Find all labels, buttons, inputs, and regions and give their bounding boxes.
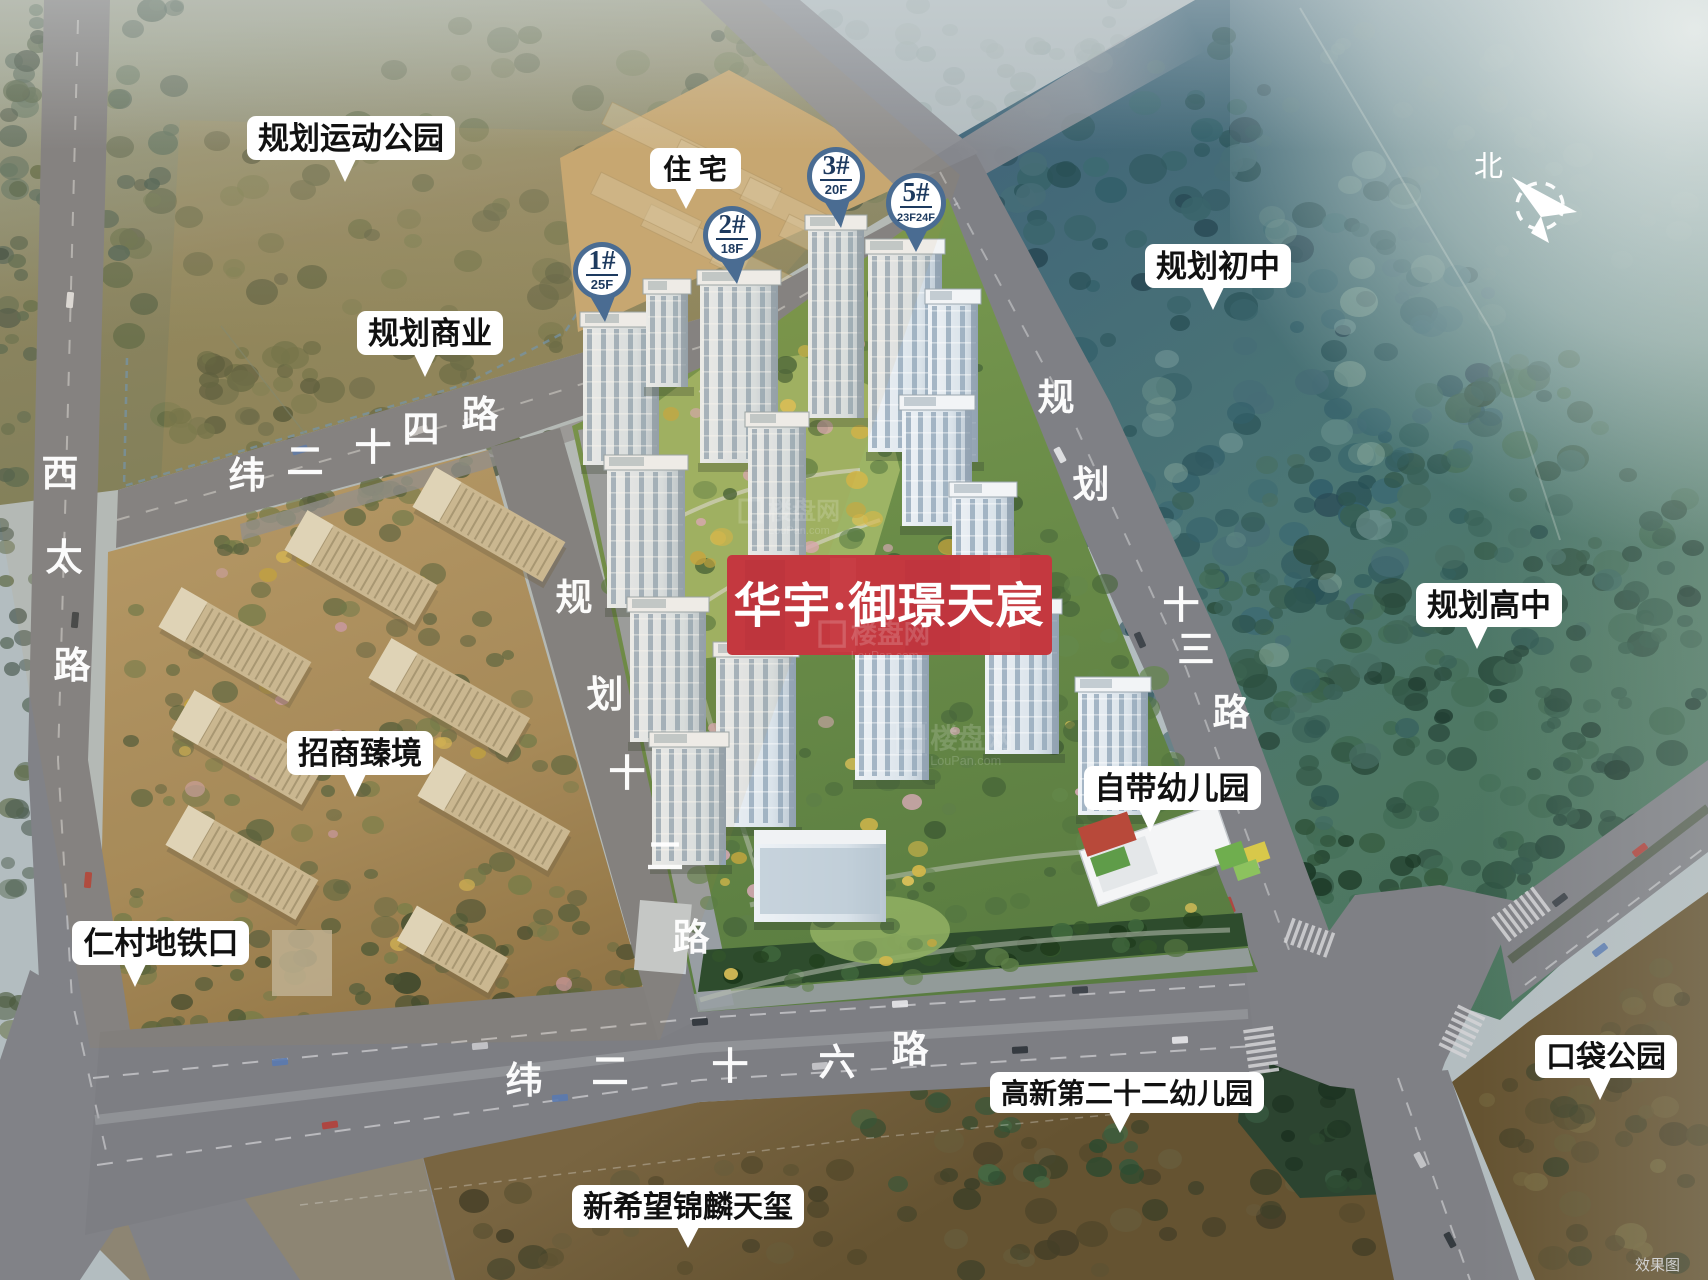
svg-text:5#: 5# — [903, 177, 931, 207]
svg-text:仁村地铁口: 仁村地铁口 — [84, 926, 239, 961]
svg-text:西: 西 — [42, 453, 79, 494]
svg-text:四: 四 — [403, 409, 440, 450]
svg-text:十: 十 — [609, 753, 646, 794]
svg-text:二: 二 — [592, 1051, 629, 1092]
svg-text:楼盘网: 楼盘网 — [930, 723, 1013, 754]
svg-text:住 宅: 住 宅 — [663, 153, 727, 185]
svg-text:LouPan.com: LouPan.com — [768, 525, 830, 537]
svg-text:LouPan.com: LouPan.com — [930, 754, 1001, 768]
svg-text:3#: 3# — [823, 150, 851, 180]
svg-text:十: 十 — [355, 427, 392, 468]
svg-text:路: 路 — [1213, 692, 1251, 733]
svg-text:纬: 纬 — [229, 455, 266, 496]
svg-text:规: 规 — [1038, 377, 1075, 418]
svg-text:招商臻境: 招商臻境 — [298, 736, 422, 771]
svg-text:18F: 18F — [721, 241, 743, 256]
svg-text:规划运动公园: 规划运动公园 — [258, 121, 444, 156]
svg-text:纬: 纬 — [506, 1060, 543, 1101]
svg-text:规划初中: 规划初中 — [1156, 249, 1280, 284]
svg-text:三: 三 — [1178, 629, 1215, 670]
svg-text:路: 路 — [892, 1029, 930, 1070]
svg-text:LouPan.com: LouPan.com — [851, 648, 919, 662]
svg-text:路: 路 — [673, 917, 711, 958]
svg-text:自带幼儿园: 自带幼儿园 — [1095, 771, 1250, 806]
svg-text:六: 六 — [819, 1042, 856, 1083]
svg-text:二: 二 — [647, 836, 684, 877]
svg-text:规划高中: 规划高中 — [1427, 588, 1551, 623]
svg-text:划: 划 — [587, 674, 624, 715]
svg-text:1#: 1# — [589, 245, 617, 275]
svg-text:二: 二 — [287, 441, 324, 482]
svg-text:2#: 2# — [719, 209, 747, 239]
svg-text:23F24F: 23F24F — [897, 212, 935, 224]
svg-text:规: 规 — [556, 577, 593, 618]
svg-text:口袋公园: 口袋公园 — [1546, 1041, 1666, 1074]
svg-text:25F: 25F — [591, 277, 613, 292]
svg-text:十: 十 — [712, 1046, 749, 1087]
svg-text:效果图: 效果图 — [1635, 1257, 1680, 1274]
svg-text:十: 十 — [1163, 585, 1200, 626]
svg-text:路: 路 — [462, 394, 500, 435]
svg-text:划: 划 — [1073, 464, 1110, 505]
svg-text:楼盘网: 楼盘网 — [768, 497, 840, 525]
svg-text:规划商业: 规划商业 — [368, 316, 492, 351]
svg-text:20F: 20F — [825, 182, 847, 197]
svg-text:北: 北 — [1474, 151, 1503, 183]
svg-text:楼盘网: 楼盘网 — [851, 619, 930, 649]
svg-text:新希望锦麟天玺: 新希望锦麟天玺 — [583, 1191, 793, 1224]
svg-text:高新第二十二幼儿园: 高新第二十二幼儿园 — [1001, 1077, 1253, 1109]
svg-text:太: 太 — [46, 537, 83, 578]
svg-text:路: 路 — [54, 645, 92, 686]
